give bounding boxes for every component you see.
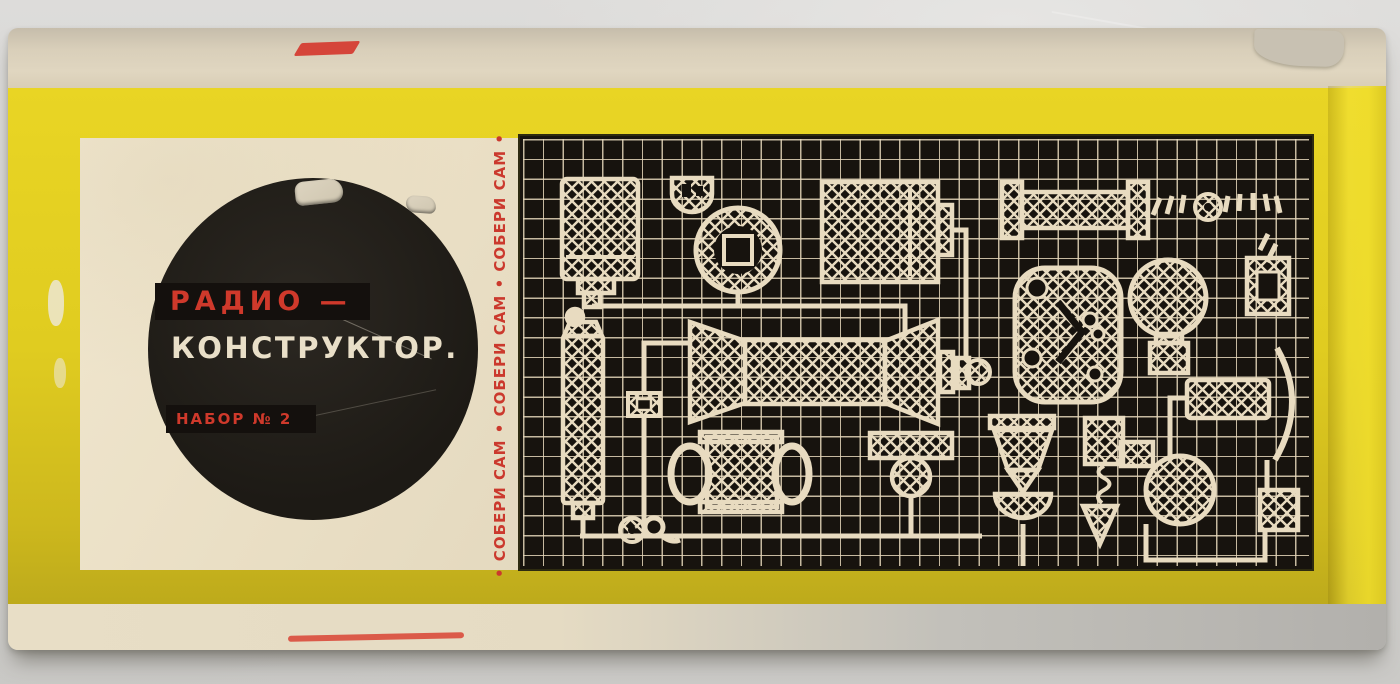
box-top-edge — [8, 28, 1386, 90]
screw-with-coil-tip — [1083, 466, 1117, 544]
terminal-block — [628, 393, 660, 416]
component-drawings — [520, 136, 1312, 569]
worn-edge-chip — [48, 280, 64, 326]
horn-earpiece — [990, 416, 1054, 518]
box-right-fold — [1328, 86, 1386, 606]
box-bottom-edge — [8, 604, 1386, 650]
coil-spool — [690, 320, 990, 424]
side-slogan-vertical: • СОБЕРИ САМ • СОБЕРИ САМ • СОБЕРИ САМ • — [486, 178, 514, 578]
contact-cup — [672, 178, 712, 212]
screws-and-washer — [1153, 193, 1280, 262]
indicator-bulb — [1130, 260, 1206, 373]
photo-background: РАДИО — КОНСТРУКТОР. НАБОР № 2 • СОБЕРИ … — [0, 0, 1400, 684]
label-chip — [405, 195, 436, 214]
tuning-capacitor — [696, 208, 780, 292]
output-transformer — [671, 432, 809, 512]
terminal-square — [1260, 490, 1298, 530]
schematic-panel — [520, 136, 1312, 569]
worn-edge-chip — [54, 358, 66, 388]
set-number-label: НАБОР № 2 — [166, 405, 316, 433]
brand-line1: РАДИО — — [155, 283, 370, 320]
loudspeaker — [1015, 268, 1121, 402]
power-transformer — [562, 179, 638, 307]
cardboard-box: РАДИО — КОНСТРУКТОР. НАБОР № 2 • СОБЕРИ … — [8, 28, 1386, 650]
brand-line2: КОНСТРУКТОР. — [171, 331, 481, 365]
red-print-mark-top — [294, 41, 361, 56]
flat-battery — [822, 182, 952, 282]
pulley-bracket — [870, 433, 952, 496]
inductor-coil — [1187, 348, 1292, 460]
round-cell-battery — [563, 309, 603, 518]
resistor — [1002, 182, 1148, 238]
mounting-frame — [1247, 258, 1289, 314]
